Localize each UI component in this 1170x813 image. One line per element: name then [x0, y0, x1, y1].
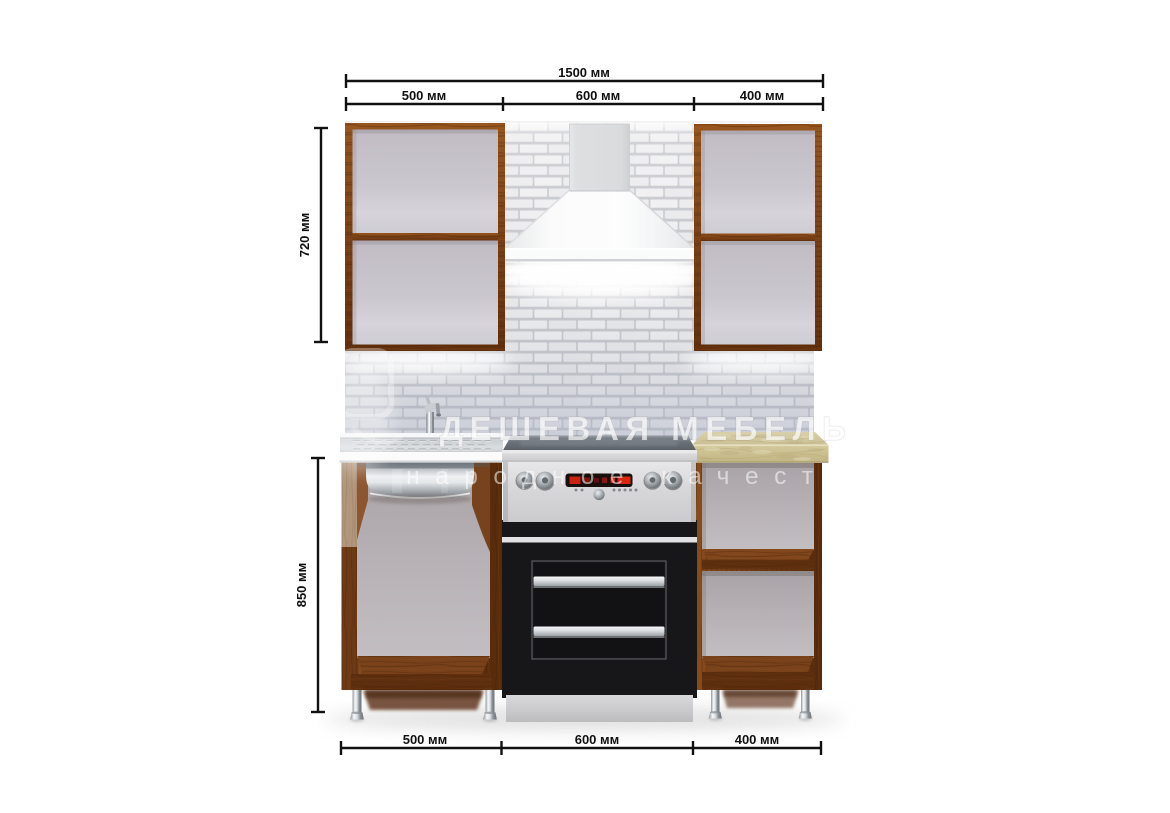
svg-text:720 мм: 720 мм: [297, 213, 312, 258]
svg-text:600 мм: 600 мм: [575, 732, 620, 747]
svg-text:500 мм: 500 мм: [402, 88, 447, 103]
svg-text:ДЕШЕВАЯ МЕБЕЛЬ: ДЕШЕВАЯ МЕБЕЛЬ: [440, 410, 853, 447]
svg-text:500 мм: 500 мм: [403, 732, 448, 747]
svg-text:1500 мм: 1500 мм: [558, 65, 610, 80]
svg-text:народное качество: народное качество: [406, 463, 886, 490]
svg-text:400 мм: 400 мм: [740, 88, 785, 103]
svg-text:400 мм: 400 мм: [735, 732, 780, 747]
svg-text:600 мм: 600 мм: [576, 88, 621, 103]
svg-text:850 мм: 850 мм: [294, 563, 309, 608]
